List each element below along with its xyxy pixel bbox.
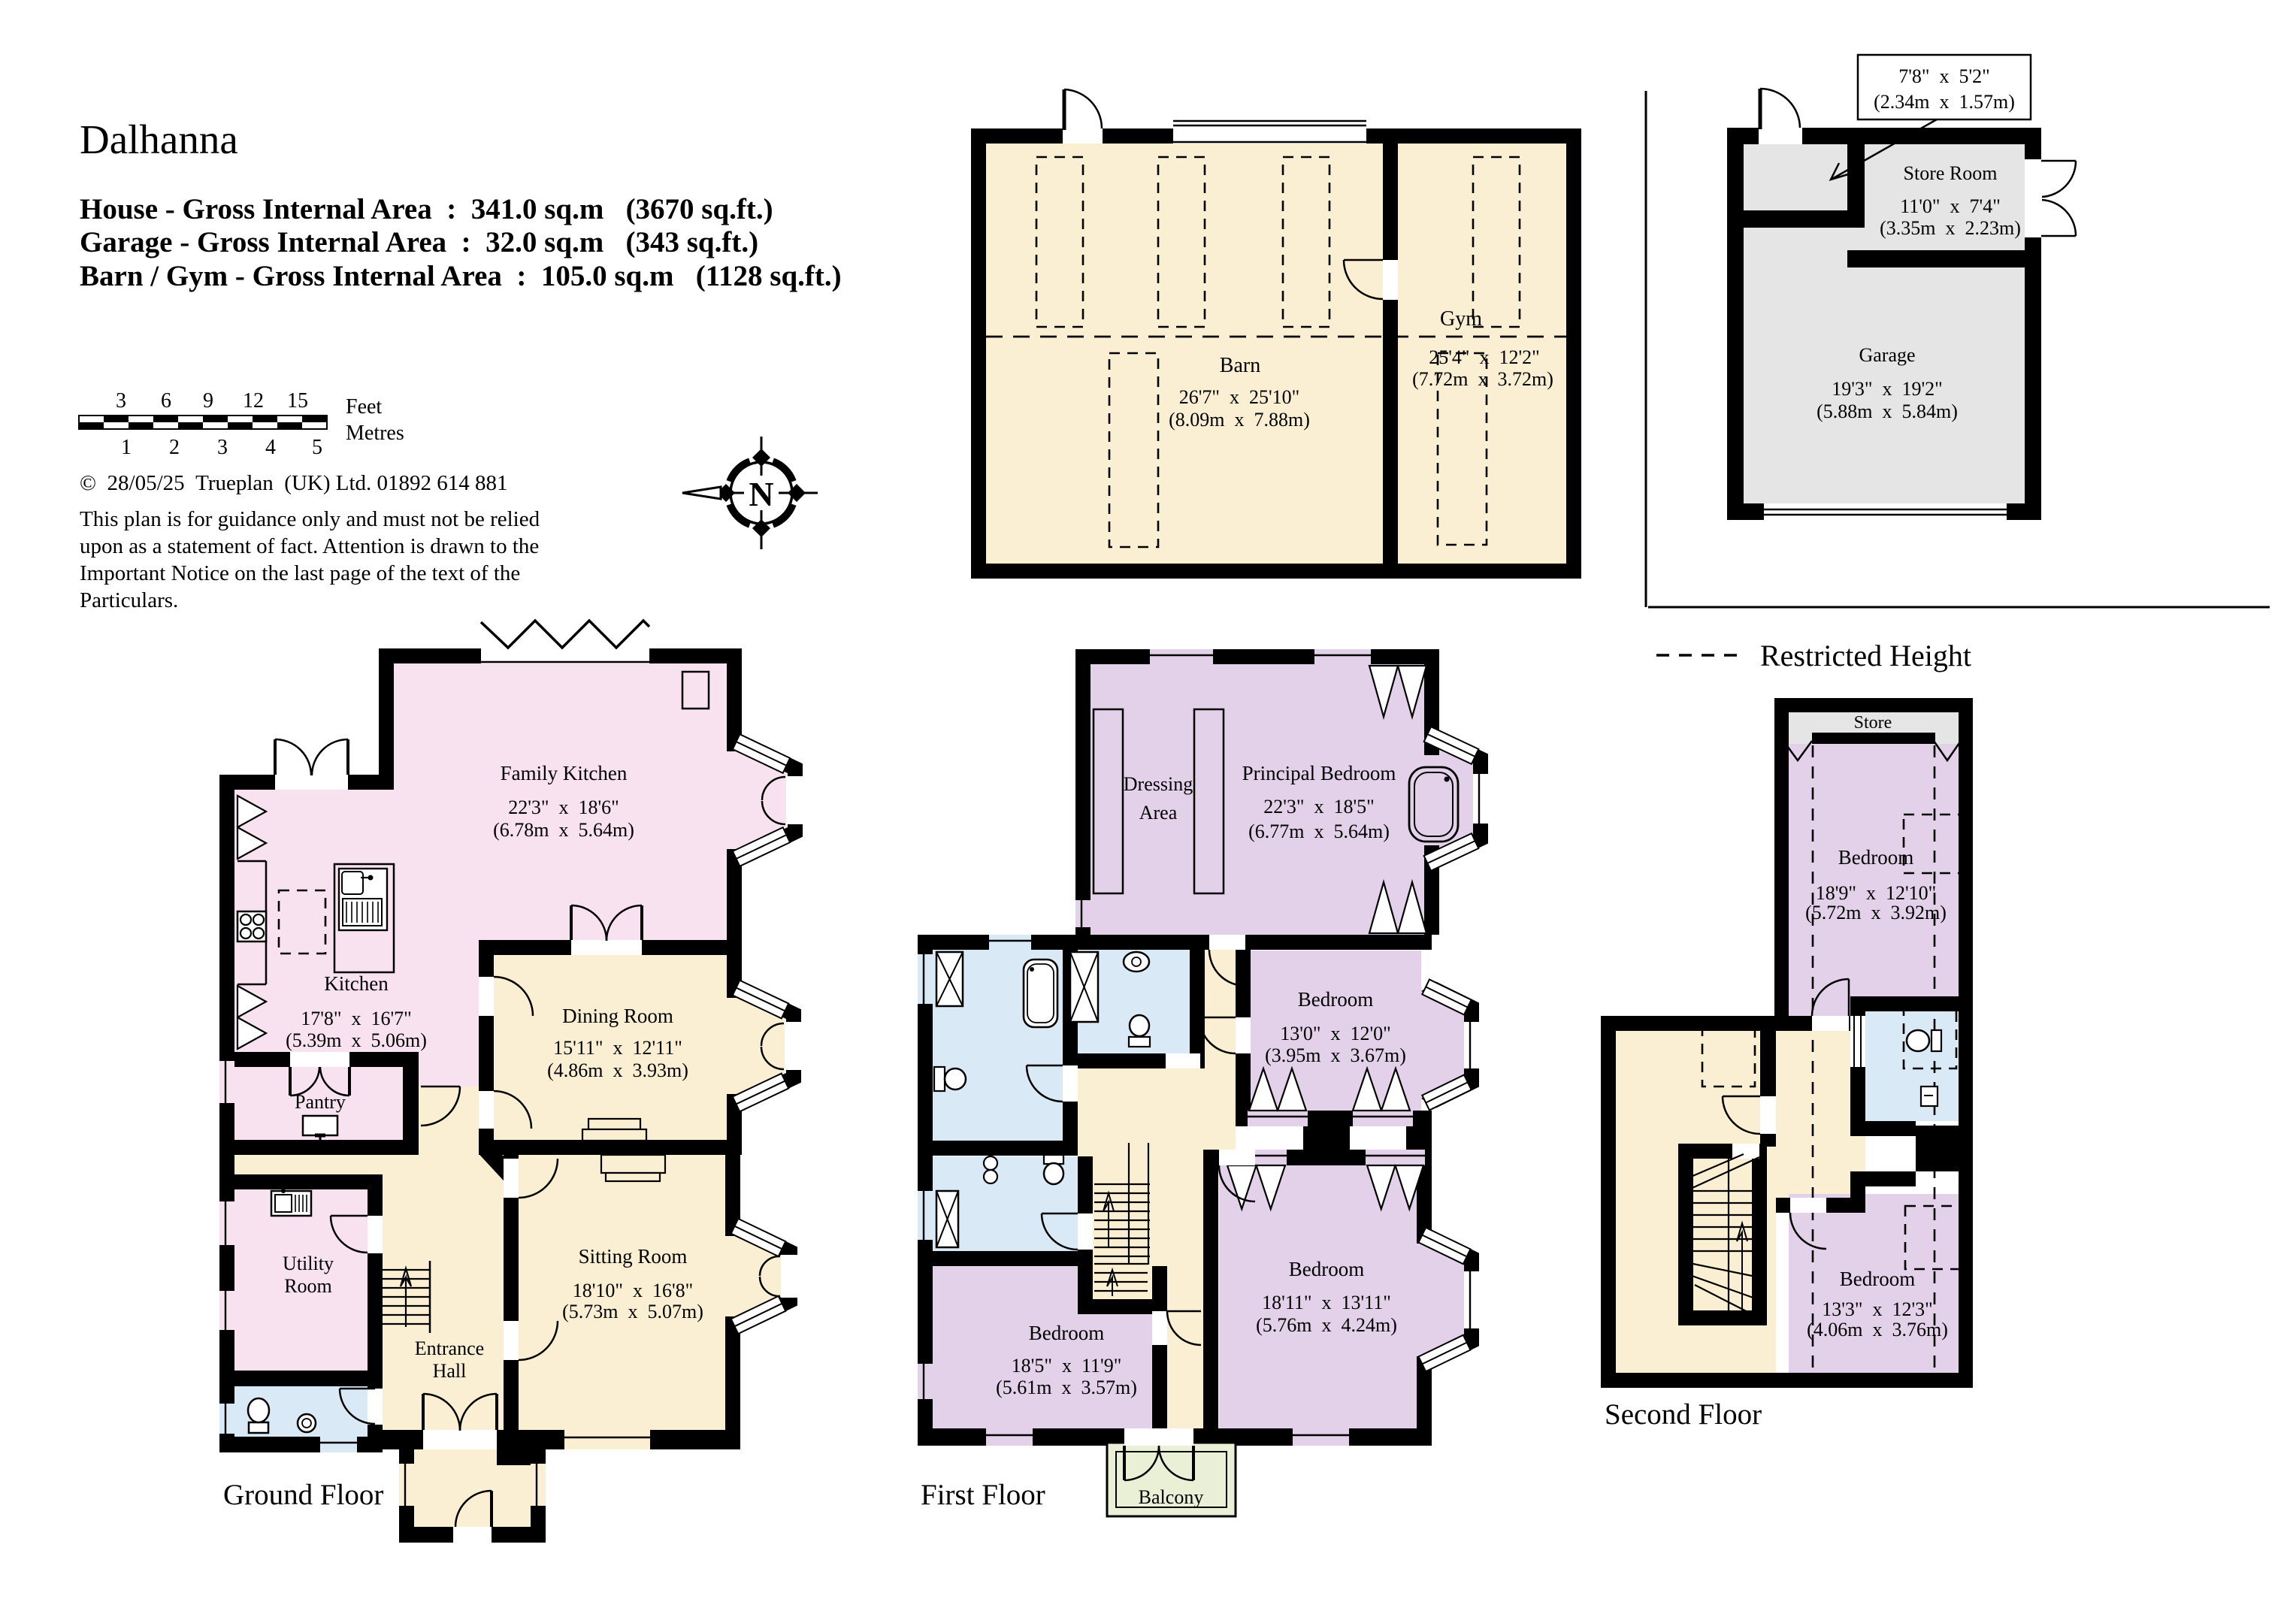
svg-text:(5.39m x 5.06m): (5.39m x 5.06m) (286, 1029, 427, 1051)
svg-text:(2.34m x 1.57m): (2.34m x 1.57m) (1874, 91, 2015, 113)
svg-text:17'8" x 16'7": 17'8" x 16'7" (301, 1008, 412, 1029)
svg-text:(5.72m x 3.92m): (5.72m x 3.92m) (1805, 902, 1947, 923)
svg-text:18'11" x 13'11": 18'11" x 13'11" (1262, 1292, 1391, 1313)
svg-text:18'5" x 11'9": 18'5" x 11'9" (1012, 1355, 1122, 1377)
svg-text:Particulars.: Particulars. (80, 588, 178, 612)
svg-text:Store: Store (1854, 713, 1892, 733)
svg-text:15'11" x 12'11": 15'11" x 12'11" (553, 1037, 682, 1059)
svg-text:Hall: Hall (433, 1360, 467, 1382)
svg-text:Pantry: Pantry (295, 1091, 346, 1113)
svg-text:(3.35m x 2.23m): (3.35m x 2.23m) (1880, 217, 2021, 239)
svg-text:18'10" x 16'8": 18'10" x 16'8" (573, 1280, 694, 1301)
svg-text:Gym: Gym (1440, 307, 1482, 331)
svg-text:N: N (749, 475, 773, 513)
svg-text:Area: Area (1139, 802, 1178, 824)
svg-text:22'3" x 18'5": 22'3" x 18'5" (1263, 796, 1375, 818)
svg-text:18'9" x 12'10": 18'9" x 12'10" (1816, 882, 1937, 904)
svg-text:13'3" x 12'3": 13'3" x 12'3" (1822, 1298, 1933, 1320)
svg-text:12: 12 (243, 389, 264, 413)
svg-text:First Floor: First Floor (921, 1479, 1045, 1511)
svg-text:Garage - Gross Internal Area: Garage - Gross Internal Area : 32.0 sq.m… (80, 226, 758, 258)
svg-text:Family Kitchen: Family Kitchen (501, 762, 628, 784)
svg-text:22'3" x 18'6": 22'3" x 18'6" (508, 796, 619, 818)
svg-text:25'4" x 12'2": 25'4" x 12'2" (1429, 346, 1540, 368)
svg-text:19'3" x 19'2": 19'3" x 19'2" (1832, 378, 1943, 400)
svg-text:Kitchen: Kitchen (324, 972, 389, 995)
svg-text:Sitting Room: Sitting Room (579, 1245, 688, 1268)
svg-text:(8.09m x 7.88m): (8.09m x 7.88m) (1169, 409, 1310, 431)
svg-text:9: 9 (203, 389, 213, 413)
svg-text:Entrance: Entrance (415, 1337, 484, 1359)
svg-text:6: 6 (161, 389, 171, 413)
svg-text:2: 2 (169, 436, 180, 459)
svg-text:Bedroom: Bedroom (1289, 1258, 1365, 1280)
svg-text:This plan is for guidance only: This plan is for guidance only and must … (80, 507, 540, 531)
svg-text:1: 1 (121, 436, 132, 459)
svg-text:Garage: Garage (1859, 344, 1915, 366)
svg-text:15: 15 (287, 389, 308, 413)
svg-text:7'8" x 5'2": 7'8" x 5'2" (1898, 65, 1990, 87)
svg-text:(3.95m x 3.67m): (3.95m x 3.67m) (1265, 1044, 1406, 1066)
svg-text:upon as a statement of fact. A: upon as a statement of fact. Attention i… (80, 534, 539, 558)
svg-text:Barn: Barn (1220, 354, 1260, 377)
svg-text:Second Floor: Second Floor (1605, 1398, 1762, 1431)
svg-text:(5.73m x 5.07m): (5.73m x 5.07m) (562, 1301, 703, 1322)
svg-text:Dalhanna: Dalhanna (80, 116, 238, 162)
svg-text:Barn / Gym - Gross Internal Ar: Barn / Gym - Gross Internal Area : 105.0… (80, 260, 842, 292)
svg-text:Dressing: Dressing (1124, 773, 1193, 795)
svg-text:© 28/05/25 Trueplan (UK) Lt: © 28/05/25 Trueplan (UK) Ltd. 01892 614 … (80, 471, 508, 495)
svg-text:5: 5 (312, 436, 322, 459)
svg-text:Bedroom: Bedroom (1840, 1268, 1916, 1290)
svg-text:(6.77m x 5.64m): (6.77m x 5.64m) (1248, 821, 1390, 842)
svg-text:(6.78m x 5.64m): (6.78m x 5.64m) (493, 819, 634, 841)
svg-text:Restricted Height: Restricted Height (1760, 639, 1971, 672)
svg-text:Store Room: Store Room (1904, 162, 1998, 184)
svg-text:3: 3 (116, 389, 126, 413)
svg-text:Bedroom: Bedroom (1838, 846, 1914, 869)
svg-text:Utility: Utility (283, 1253, 334, 1274)
svg-text:3: 3 (217, 436, 228, 459)
svg-text:Metres: Metres (346, 422, 404, 445)
svg-text:(4.86m x 3.93m): (4.86m x 3.93m) (547, 1059, 688, 1081)
svg-text:(5.88m x 5.84m): (5.88m x 5.84m) (1817, 400, 1958, 422)
svg-text:Principal Bedroom: Principal Bedroom (1242, 762, 1396, 784)
svg-text:13'0" x 12'0": 13'0" x 12'0" (1280, 1023, 1391, 1044)
svg-text:(5.61m x 3.57m): (5.61m x 3.57m) (996, 1377, 1137, 1398)
svg-text:4: 4 (265, 436, 276, 459)
svg-text:Feet: Feet (346, 395, 382, 419)
svg-text:(5.76m x 4.24m): (5.76m x 4.24m) (1256, 1314, 1397, 1336)
svg-text:26'7" x 25'10": 26'7" x 25'10" (1179, 386, 1300, 408)
svg-text:(4.06m x 3.76m): (4.06m x 3.76m) (1807, 1319, 1948, 1340)
svg-text:Dining Room: Dining Room (562, 1005, 673, 1027)
svg-text:House - Gross Internal Area :: House - Gross Internal Area : 341.0 sq.m… (80, 193, 773, 225)
svg-text:Bedroom: Bedroom (1298, 988, 1374, 1011)
svg-text:Balcony: Balcony (1139, 1486, 1204, 1508)
svg-text:11'0" x 7'4": 11'0" x 7'4" (1900, 195, 2001, 217)
svg-text:Ground Floor: Ground Floor (223, 1479, 383, 1511)
svg-text:(7.72m x 3.72m): (7.72m x 3.72m) (1412, 368, 1553, 390)
svg-text:Bedroom: Bedroom (1029, 1322, 1105, 1344)
svg-text:Important Notice on the last p: Important Notice on the last page of the… (80, 561, 520, 585)
svg-text:Room: Room (284, 1275, 332, 1297)
